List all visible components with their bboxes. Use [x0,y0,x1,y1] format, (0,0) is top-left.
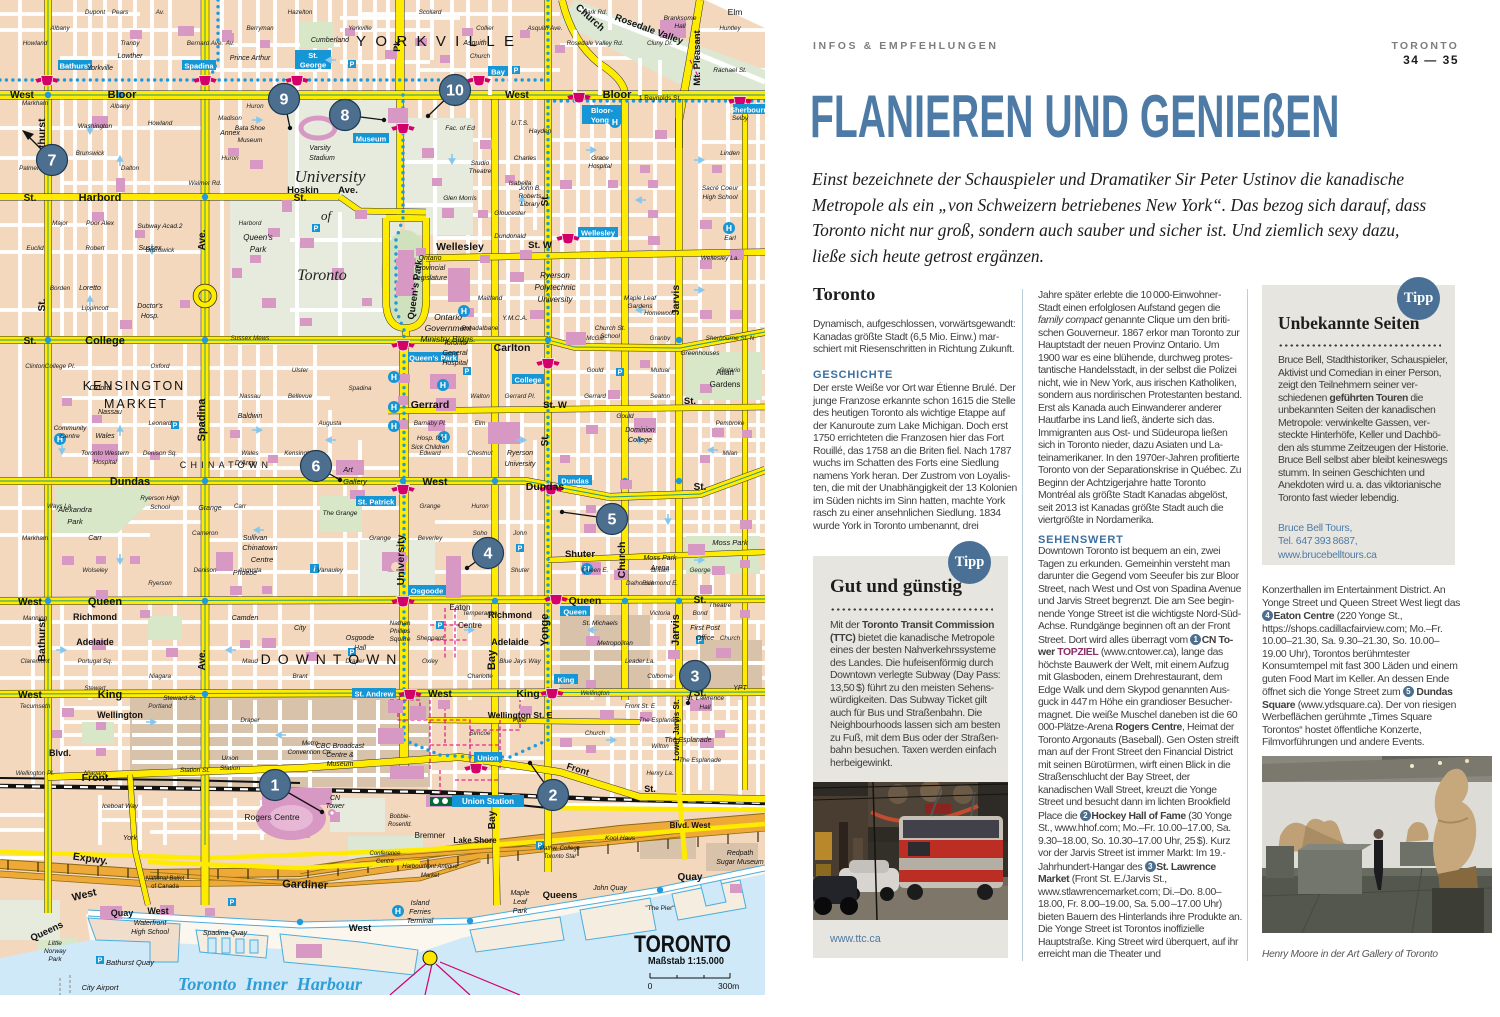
svg-text:Bathurst: Bathurst [36,618,48,662]
svg-text:H: H [395,906,401,916]
svg-text:Queen: Queen [563,608,587,617]
svg-text:Rosedale Valley Rd.: Rosedale Valley Rd. [567,40,624,47]
svg-text:Richmond: Richmond [73,612,117,622]
svg-text:St.: St. [308,51,318,60]
svg-text:Selby: Selby [732,115,749,122]
svg-text:Ways La.: Ways La. [47,503,73,510]
svg-text:Quay: Quay [677,872,702,883]
svg-text:P: P [230,900,235,907]
svg-text:Wolseley: Wolseley [82,567,108,574]
svg-text:Convention Ctr.: Convention Ctr. [288,749,333,756]
svg-text:3: 3 [691,669,700,686]
svg-text:Lippincott: Lippincott [82,305,109,312]
svg-text:Park: Park [250,245,267,254]
svg-text:Yorkville: Yorkville [87,65,113,72]
svg-text:Bremner: Bremner [415,831,446,840]
svg-text:St. Lawrence: St. Lawrence [686,695,724,702]
svg-text:University: University [537,295,573,304]
svg-text:Ave.: Ave. [197,649,208,670]
svg-text:National Ballet: National Ballet [146,876,185,882]
svg-text:Spadina: Spadina [196,398,208,442]
svg-text:DOWNTOWN: DOWNTOWN [261,651,404,667]
svg-text:Terminal: Terminal [407,918,434,925]
svg-text:Pears: Pears [112,9,129,16]
svg-text:Steward St.: Steward St. [163,695,197,702]
svg-text:Waterfront: Waterfront [134,920,168,927]
svg-text:Scollard: Scollard [419,9,442,16]
svg-text:Poor Alex: Poor Alex [86,220,115,227]
svg-text:Britain: Britain [651,567,669,574]
svg-text:Rachael St.: Rachael St. [713,67,747,74]
svg-text:York: York [123,835,138,842]
svg-text:King: King [516,688,539,700]
svg-text:Museum: Museum [356,135,387,144]
svg-text:Osgoode: Osgoode [411,587,444,596]
svg-text:Adelaide: Adelaide [491,637,529,647]
svg-text:Gerrard Pl.: Gerrard Pl. [505,393,536,400]
svg-text:Jarvis: Jarvis [670,614,682,646]
svg-text:City Airport: City Airport [82,983,120,992]
svg-text:Union: Union [477,754,499,763]
svg-text:Norway: Norway [44,948,67,955]
svg-text:Yonge: Yonge [539,614,551,647]
svg-text:City: City [294,625,307,632]
svg-text:John Quay: John Quay [592,885,627,892]
svg-text:Grange: Grange [419,503,441,510]
svg-text:Bloor: Bloor [108,89,137,101]
svg-text:West: West [147,906,168,916]
svg-text:John: John [512,530,527,537]
svg-text:Hospital: Hospital [588,163,612,170]
svg-text:Church: Church [585,730,606,737]
svg-text:Park: Park [513,908,528,915]
svg-text:Bloor-: Bloor- [591,106,614,115]
svg-text:Wellesley: Wellesley [436,241,484,253]
svg-text:King: King [558,676,575,685]
svg-text:Subway Acad.2: Subway Acad.2 [138,223,183,230]
svg-text:Station St.: Station St. [180,767,210,774]
svg-text:Piper: Piper [513,717,529,724]
svg-text:Annex: Annex [219,130,240,137]
svg-text:Borden: Borden [50,285,71,292]
svg-text:Wellington: Wellington [580,690,610,697]
svg-text:Oxford: Oxford [151,363,170,370]
svg-text:West: West [18,597,42,608]
svg-text:Bay: Bay [487,810,498,829]
svg-text:Government: Government [425,323,472,333]
svg-text:Euclid: Euclid [26,245,44,252]
svg-text:Major: Major [52,220,69,227]
svg-text:College: College [628,437,652,444]
svg-text:Mt. Pleasant: Mt. Pleasant [692,29,703,85]
svg-text:Clinton: Clinton [25,363,45,370]
svg-text:Huron: Huron [471,503,489,510]
svg-text:Huron: Huron [246,103,264,110]
svg-text:Sussex Mews: Sussex Mews [231,335,271,342]
svg-text:Sherbourn: Sherbourn [730,106,765,115]
svg-text:Office: Office [696,635,714,642]
svg-text:Niagara: Niagara [149,673,172,680]
svg-text:The Esplanade: The Esplanade [664,737,711,744]
svg-text:YORKVILLE: YORKVILLE [356,33,514,50]
svg-text:Walmer Rd.: Walmer Rd. [188,180,221,187]
svg-text:Dupont: Dupont [85,9,106,16]
svg-text:Augusta: Augusta [317,420,342,427]
svg-text:Temperance: Temperance [463,610,498,617]
svg-text:St. W: St. W [543,400,567,411]
svg-text:Sacré Coeur: Sacré Coeur [702,185,739,192]
svg-text:Centre: Centre [251,555,274,564]
svg-text:St.: St. [24,193,37,204]
svg-text:Augusta: Augusta [237,567,262,574]
svg-text:Roberts: Roberts [519,193,543,200]
svg-text:Grace: Grace [591,155,609,162]
svg-text:Branksome: Branksome [664,15,697,22]
svg-text:Pathw. College: Pathw. College [540,846,581,852]
svg-text:Wellington Pl.: Wellington Pl. [16,770,54,777]
svg-text:Bobbie-: Bobbie- [390,814,411,820]
svg-text:Elm: Elm [728,7,743,17]
svg-text:Theatre: Theatre [469,168,492,175]
svg-text:Ulster: Ulster [292,367,309,374]
svg-text:Blvd.: Blvd. [49,748,71,758]
svg-text:Park: Park [67,517,84,526]
svg-text:Albany: Albany [109,103,130,110]
svg-text:Cluny Dr.: Cluny Dr. [647,40,673,47]
svg-text:Isabella: Isabella [509,180,532,187]
svg-text:George: George [300,61,326,70]
svg-text:1 Reynolds St.: 1 Reynolds St. [639,95,681,102]
svg-text:Maple Leaf: Maple Leaf [624,295,657,302]
svg-text:"The Pier": "The Pier" [645,905,675,912]
svg-text:Richmond E.: Richmond E. [642,580,678,587]
svg-text:Cumberland: Cumberland [311,37,350,44]
svg-text:Milan: Milan [722,450,738,457]
svg-text:School: School [150,504,170,511]
svg-text:The Esplanade: The Esplanade [639,717,682,724]
svg-text:9: 9 [280,92,289,109]
svg-text:St.: St. [540,433,551,446]
svg-text:Quay: Quay [111,908,134,918]
svg-text:Carr: Carr [88,535,102,542]
svg-text:Charles: Charles [514,155,537,162]
svg-text:Bathurst Quay: Bathurst Quay [106,958,155,967]
svg-text:Kool Haus: Kool Haus [605,835,636,842]
svg-text:Draper: Draper [240,717,260,724]
svg-text:Polytechnic: Polytechnic [535,283,576,292]
svg-text:Library: Library [520,201,541,208]
svg-text:Spadina: Spadina [184,62,214,71]
svg-text:CN: CN [330,795,341,802]
svg-text:Rosenfd.: Rosenfd. [388,822,412,828]
svg-text:Brant: Brant [292,673,307,680]
svg-text:Queen: Queen [569,595,602,607]
svg-text:Yorkville: Yorkville [348,25,372,32]
svg-text:St.: St. [684,396,696,407]
svg-text:Henry La.: Henry La. [646,770,673,777]
svg-text:Wales: Wales [95,433,115,440]
svg-text:Elm: Elm [475,420,486,427]
svg-text:Berryman: Berryman [246,25,274,32]
svg-text:Chinatown: Chinatown [242,543,277,552]
svg-text:Grange: Grange [369,535,391,542]
svg-text:Adelaide: Adelaide [76,637,114,647]
svg-text:Baldwin: Baldwin [238,413,263,420]
svg-text:Shuter: Shuter [511,567,530,574]
svg-text:Dundas: Dundas [110,476,150,488]
svg-text:0: 0 [648,981,653,991]
svg-text:Hall: Hall [674,23,686,30]
svg-text:General: General [443,350,468,357]
svg-text:St.: St. [540,193,551,206]
svg-text:Hazelton: Hazelton [288,9,313,16]
svg-text:Dalton: Dalton [121,165,140,172]
svg-text:College: College [85,335,125,347]
svg-text:West: West [428,689,452,700]
svg-text:Gerrard: Gerrard [411,399,450,411]
svg-text:5: 5 [608,512,617,529]
svg-text:Ryerson: Ryerson [540,271,570,280]
svg-text:Hospital: Hospital [442,360,468,367]
svg-text:Gould: Gould [587,367,604,374]
svg-text:Doctor's: Doctor's [137,303,163,310]
svg-text:Ontario: Ontario [419,255,442,262]
svg-text:Union: Union [222,755,239,762]
svg-text:Brunswick: Brunswick [146,247,176,254]
svg-text:Spadina: Spadina [348,385,372,392]
svg-text:Gerrard: Gerrard [584,393,606,400]
svg-text:Ryerson High: Ryerson High [140,495,180,502]
svg-text:Carlton: Carlton [494,342,531,354]
svg-text:University: University [505,461,536,468]
svg-text:Lake Shore: Lake Shore [453,836,497,845]
svg-text:St.: St. [694,595,707,606]
svg-text:High School: High School [131,929,169,936]
svg-text:Collier: Collier [476,25,495,32]
svg-text:University: University [295,167,366,186]
svg-text:Sugar Museum: Sugar Museum [716,859,764,866]
svg-text:Redpath: Redpath [727,850,754,857]
svg-text:Av.: Av. [225,40,235,47]
svg-text:Wellesley: Wellesley [581,229,616,238]
svg-text:Station: Station [220,765,241,772]
svg-text:Edward: Edward [419,450,441,457]
svg-text:TORONTO: TORONTO [634,931,731,958]
svg-text:H: H [391,421,397,431]
svg-text:MARKET: MARKET [104,397,168,411]
svg-text:Ontario: Ontario [720,367,741,374]
svg-text:Wellington: Wellington [97,710,143,720]
svg-text:Community: Community [54,425,88,432]
svg-text:Queen E.: Queen E. [582,567,609,574]
svg-text:Claremont: Claremont [20,658,49,665]
svg-text:Linden: Linden [720,150,740,157]
svg-text:P: P [98,958,103,965]
svg-text:College Pl.: College Pl. [45,363,75,370]
svg-text:Niagara: Niagara [84,770,107,777]
svg-text:of Canada: of Canada [151,884,179,890]
svg-text:Ryerson: Ryerson [507,450,533,457]
svg-text:Soho: Soho [473,530,488,537]
svg-text:Av.: Av. [155,9,165,16]
svg-text:Markham: Markham [22,100,48,107]
svg-text:George: George [689,567,711,574]
svg-text:Gardiner: Gardiner [282,878,329,892]
svg-text:Pembroke: Pembroke [716,420,745,427]
svg-text:Albany: Albany [49,25,70,32]
svg-text:Sullivan: Sullivan [243,535,268,542]
svg-text:Legislature: Legislature [413,275,447,282]
svg-text:St. W: St. W [528,240,552,251]
svg-text:Ryerson: Ryerson [148,580,172,587]
svg-text:Seaton: Seaton [650,393,670,400]
svg-text:Toronto Star: Toronto Star [544,854,578,860]
svg-text:Hayden: Hayden [529,128,552,135]
svg-text:Museum: Museum [327,761,354,768]
svg-text:Grange: Grange [198,505,221,512]
svg-text:YPT: YPT [733,685,747,692]
svg-text:Beverley: Beverley [418,535,443,542]
svg-text:Cameron: Cameron [192,530,218,537]
svg-text:Hosp. for: Hosp. for [417,435,444,442]
svg-text:Centre: Centre [458,621,483,630]
svg-text:Simcoe: Simcoe [470,730,491,737]
svg-text:St.: St. [37,298,48,311]
svg-text:Park: Park [48,956,62,963]
svg-text:Markham: Markham [22,535,48,542]
svg-text:Dundas: Dundas [526,481,565,493]
svg-text:University: University [395,534,407,585]
svg-text:Camden: Camden [232,615,259,622]
svg-text:8: 8 [341,108,350,125]
svg-text:Ave.: Ave. [197,229,208,250]
svg-text:Maitland: Maitland [478,295,503,302]
svg-text:West: West [423,476,448,488]
svg-text:Tecumseth: Tecumseth [20,703,51,710]
svg-text:Chestnut: Chestnut [467,450,492,457]
svg-text:Church: Church [616,542,628,579]
svg-text:Spadina Quay: Spadina Quay [203,930,248,937]
svg-text:Loretto: Loretto [79,285,101,292]
svg-text:6: 6 [312,459,321,476]
svg-text:Square: Square [390,636,411,643]
svg-text:Maple: Maple [510,890,529,897]
svg-text:CHINATOWN: CHINATOWN [180,460,272,470]
svg-text:McGill: McGill [586,335,604,342]
svg-text:Island: Island [411,900,431,907]
svg-text:KENSINGTON: KENSINGTON [83,379,185,393]
svg-text:Blvd. West: Blvd. West [670,821,711,830]
svg-text:Maßstab 1:15.000: Maßstab 1:15.000 [648,956,724,967]
svg-text:Gardens: Gardens [628,303,654,310]
svg-text:Nathan: Nathan [390,620,411,627]
svg-text:Blue Jays Way: Blue Jays Way [499,658,541,665]
svg-text:P: P [314,226,319,233]
svg-text:Toronto Western: Toronto Western [81,450,129,457]
svg-text:H: H [391,402,397,412]
svg-text:Harbord: Harbord [79,192,122,204]
svg-text:P: P [514,68,519,75]
svg-text:Bay: Bay [491,68,506,77]
svg-text:Leaf: Leaf [513,899,528,906]
svg-text:High School: High School [702,194,738,201]
svg-text:Walton: Walton [470,393,490,400]
svg-text:Gould: Gould [616,413,634,420]
svg-text:Washington: Washington [78,123,113,130]
svg-text:St.: St. [644,784,656,794]
svg-text:Barnaby Pl.: Barnaby Pl. [414,420,447,427]
svg-text:Mutual: Mutual [651,367,671,374]
svg-text:H: H [391,372,397,382]
svg-text:Wellesley La.: Wellesley La. [701,255,740,262]
svg-text:Leader La.: Leader La. [625,658,655,665]
svg-text:Ministry Bldgs.: Ministry Bldgs. [420,334,475,344]
svg-text:Varsity: Varsity [309,145,331,152]
svg-text:West: West [18,690,42,701]
svg-text:St.: St. [694,482,707,493]
svg-text:College: College [514,376,541,385]
svg-text:Nassau: Nassau [239,393,261,400]
svg-text:Denison: Denison [193,567,217,574]
svg-text:Lower Jarvis St.: Lower Jarvis St. [672,699,681,760]
svg-text:Vanauley: Vanauley [317,567,344,574]
svg-text:Union Station: Union Station [462,797,514,806]
svg-text:U.T.S.: U.T.S. [511,120,529,127]
svg-text:Conference: Conference [369,851,401,857]
svg-text:Metropolitan: Metropolitan [597,640,633,647]
svg-text:Greenhouses: Greenhouses [680,350,720,357]
svg-text:Centre: Centre [376,859,395,865]
svg-text:Leonard: Leonard [148,420,172,427]
svg-text:Church: Church [720,635,741,642]
svg-text:Robert: Robert [86,245,105,252]
svg-text:Church St.: Church St. [595,325,626,332]
svg-text:Rogers Centre: Rogers Centre [244,812,300,822]
svg-text:Huntley: Huntley [719,25,741,32]
svg-text:Queen's: Queen's [243,233,273,242]
svg-text:Manning: Manning [23,615,48,622]
svg-text:Carr: Carr [234,503,247,510]
svg-text:Dundonald: Dundonald [494,233,526,240]
svg-text:Church: Church [470,53,491,60]
svg-text:10: 10 [446,83,464,100]
svg-text:Howland: Howland [23,40,48,47]
svg-text:Osgoode: Osgoode [346,635,375,642]
svg-text:Little: Little [48,940,62,947]
svg-text:The Esplanade: The Esplanade [679,757,722,764]
svg-text:Hoskin: Hoskin [287,185,319,196]
svg-text:First Post: First Post [690,625,721,632]
svg-text:Granby: Granby [650,335,672,342]
svg-text:Ave.: Ave. [338,185,358,196]
svg-text:4: 4 [484,546,493,563]
svg-text:Glen Morris: Glen Morris [443,195,477,202]
svg-text:2: 2 [549,788,558,805]
svg-text:Stewart: Stewart [84,685,106,692]
svg-text:Provincial: Provincial [415,265,446,272]
svg-text:Wales: Wales [241,450,259,457]
svg-text:H: H [440,380,446,390]
svg-text:Queen: Queen [88,596,123,608]
svg-text:Studio: Studio [471,160,490,167]
svg-text:Centre: Centre [60,433,80,440]
svg-text:Brunswick: Brunswick [76,150,106,157]
svg-text:P: P [465,369,470,376]
svg-text:H: H [726,223,732,233]
svg-text:Bellevue: Bellevue [288,393,313,400]
svg-text:Earl: Earl [724,235,736,242]
svg-text:Bond: Bond [693,610,708,617]
